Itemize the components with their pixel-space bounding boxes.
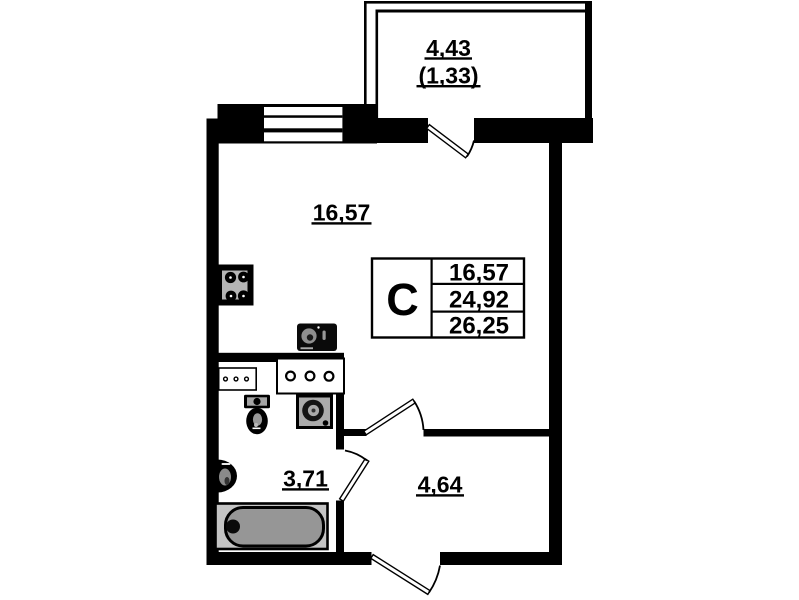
svg-text:C: C <box>386 274 419 325</box>
svg-text:16,57: 16,57 <box>313 200 371 226</box>
svg-text:16,57: 16,57 <box>449 260 509 287</box>
svg-text:26,25: 26,25 <box>449 313 509 340</box>
svg-text:(1,33): (1,33) <box>418 63 478 89</box>
svg-text:24,92: 24,92 <box>449 287 509 314</box>
svg-text:4,43: 4,43 <box>426 35 471 61</box>
svg-text:3,71: 3,71 <box>283 466 328 492</box>
svg-text:4,64: 4,64 <box>418 472 463 498</box>
